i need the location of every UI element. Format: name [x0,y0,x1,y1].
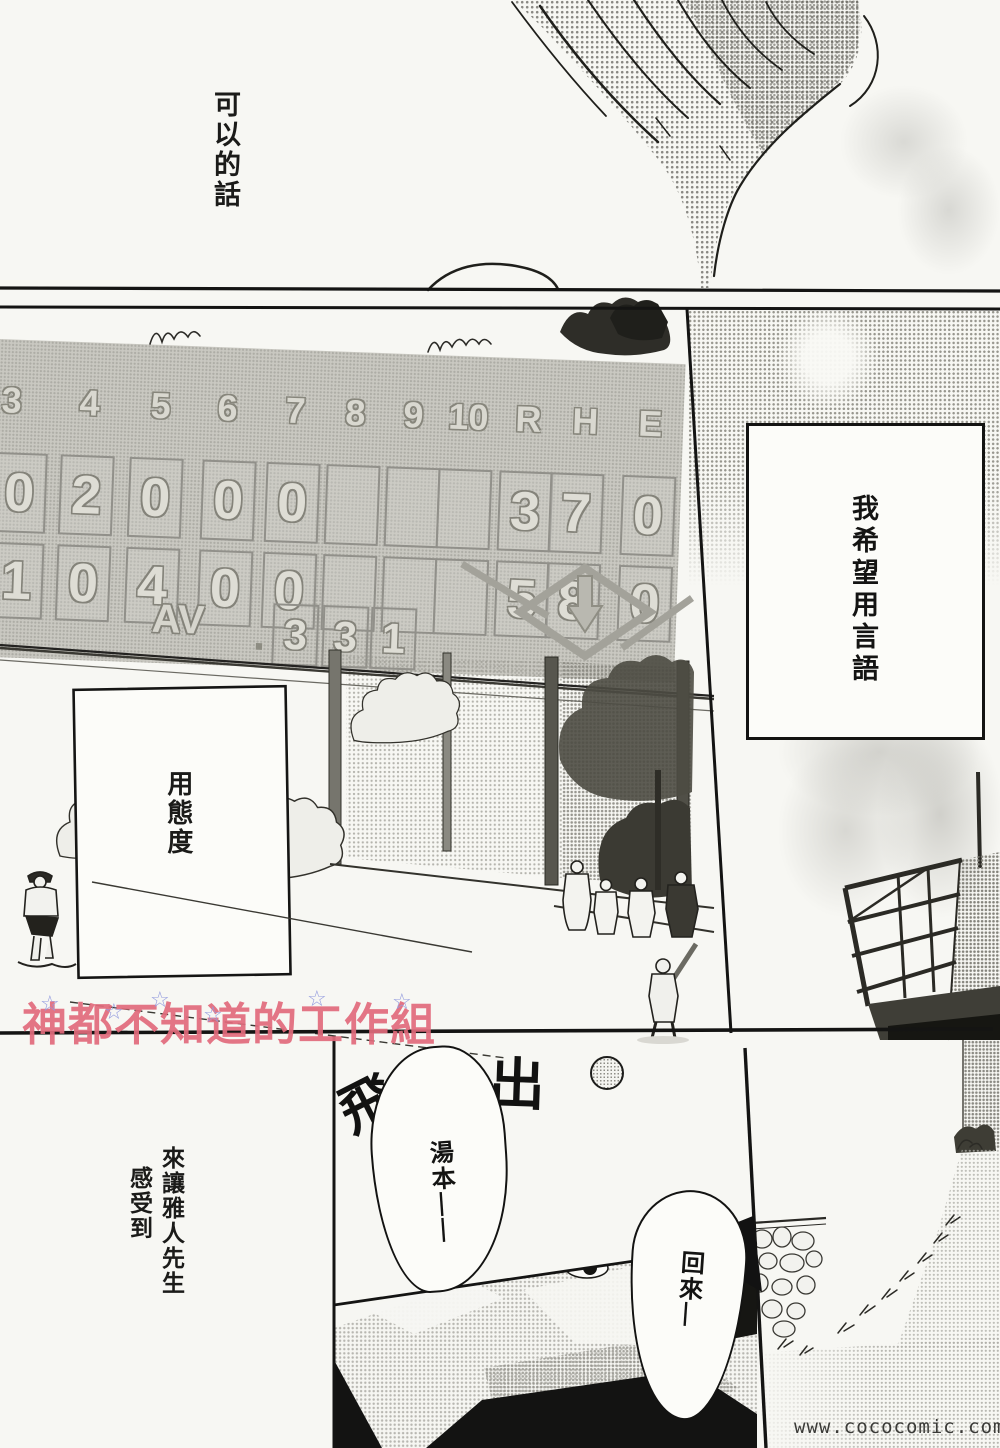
score-cell-runs: 3 [497,470,554,552]
narration-words: 我希望用言語 [847,494,878,686]
score-cell-errors: 0 [616,565,673,643]
star-icon: ☆ [307,986,327,1012]
inning-6: 6 [217,387,239,430]
score-cell-runs: 5 [493,560,550,638]
inning-9: 9 [403,394,425,437]
score-cell: 0 [127,457,184,539]
foliage-silhouette [560,297,670,355]
inning-10: 10 [448,396,490,439]
narration-margin-line2: 感受到 [126,1166,152,1241]
inning-3: 3 [1,379,23,422]
speech-text: 回來— [671,1249,704,1329]
spectators [563,861,698,937]
manga-page: 可以的話 3 4 5 6 7 8 9 10 R [0,0,1000,1448]
score-cell-empty [436,468,493,550]
panel-wall-scenery [748,1037,1000,1448]
site-watermark: www.cococomic.com [794,1416,1000,1438]
narration-attitude: 用態度 [163,770,193,857]
col-hits: H [572,400,600,443]
score-cell: 1 [0,542,45,620]
score-cell-empty [432,558,489,636]
field-art [0,645,714,1044]
score-cell-hits: 7 [548,472,605,554]
inning-7: 7 [285,390,307,433]
narration-margin-line1: 來讓雅人先生 [158,1146,184,1296]
score-cell-errors: 0 [619,475,676,557]
star-icon: ☆ [392,989,412,1015]
narration-box-words: 我希望用言語 [746,423,985,740]
avg-digit-box: 3 [321,605,369,669]
score-cell-hits: 8 [544,562,601,640]
score-cell: 0 [264,462,321,544]
col-runs: R [515,398,543,441]
speech-text: 湯本—— [424,1139,459,1245]
scanlation-watermark: 神都不知道的工作組 [22,988,436,1053]
inning-8: 8 [345,392,367,435]
score-cell-empty [384,466,441,548]
score-cell-empty [324,464,381,546]
inning-5: 5 [150,385,172,428]
batter [637,944,696,1044]
col-errors: E [638,402,664,445]
soft-cloud-glow [840,85,1000,275]
star-icon: ☆ [150,987,170,1013]
score-cell: 0 [197,549,254,627]
scoreboard: 3 4 5 6 7 8 9 10 R H E 0 2 0 0 0 3 7 0 1… [0,338,686,682]
star-icon: ☆ [104,999,124,1025]
star-icon: ☆ [203,1002,223,1028]
score-cell: 0 [0,452,48,534]
narration-top: 可以的話 [209,90,240,210]
avg-digit-box: 3 [271,603,319,667]
score-cell: 0 [200,460,257,542]
standing-man [18,872,76,967]
star-icon: ☆ [40,991,60,1017]
avg-digit-box: 1 [369,607,417,671]
score-cell: 2 [58,454,115,536]
inning-4: 4 [79,382,101,425]
sightline [92,882,472,952]
avg-decimal-point: . [252,611,266,661]
baseball [590,1056,624,1090]
avg-label: AV [151,597,205,644]
score-cell: 0 [55,544,112,622]
